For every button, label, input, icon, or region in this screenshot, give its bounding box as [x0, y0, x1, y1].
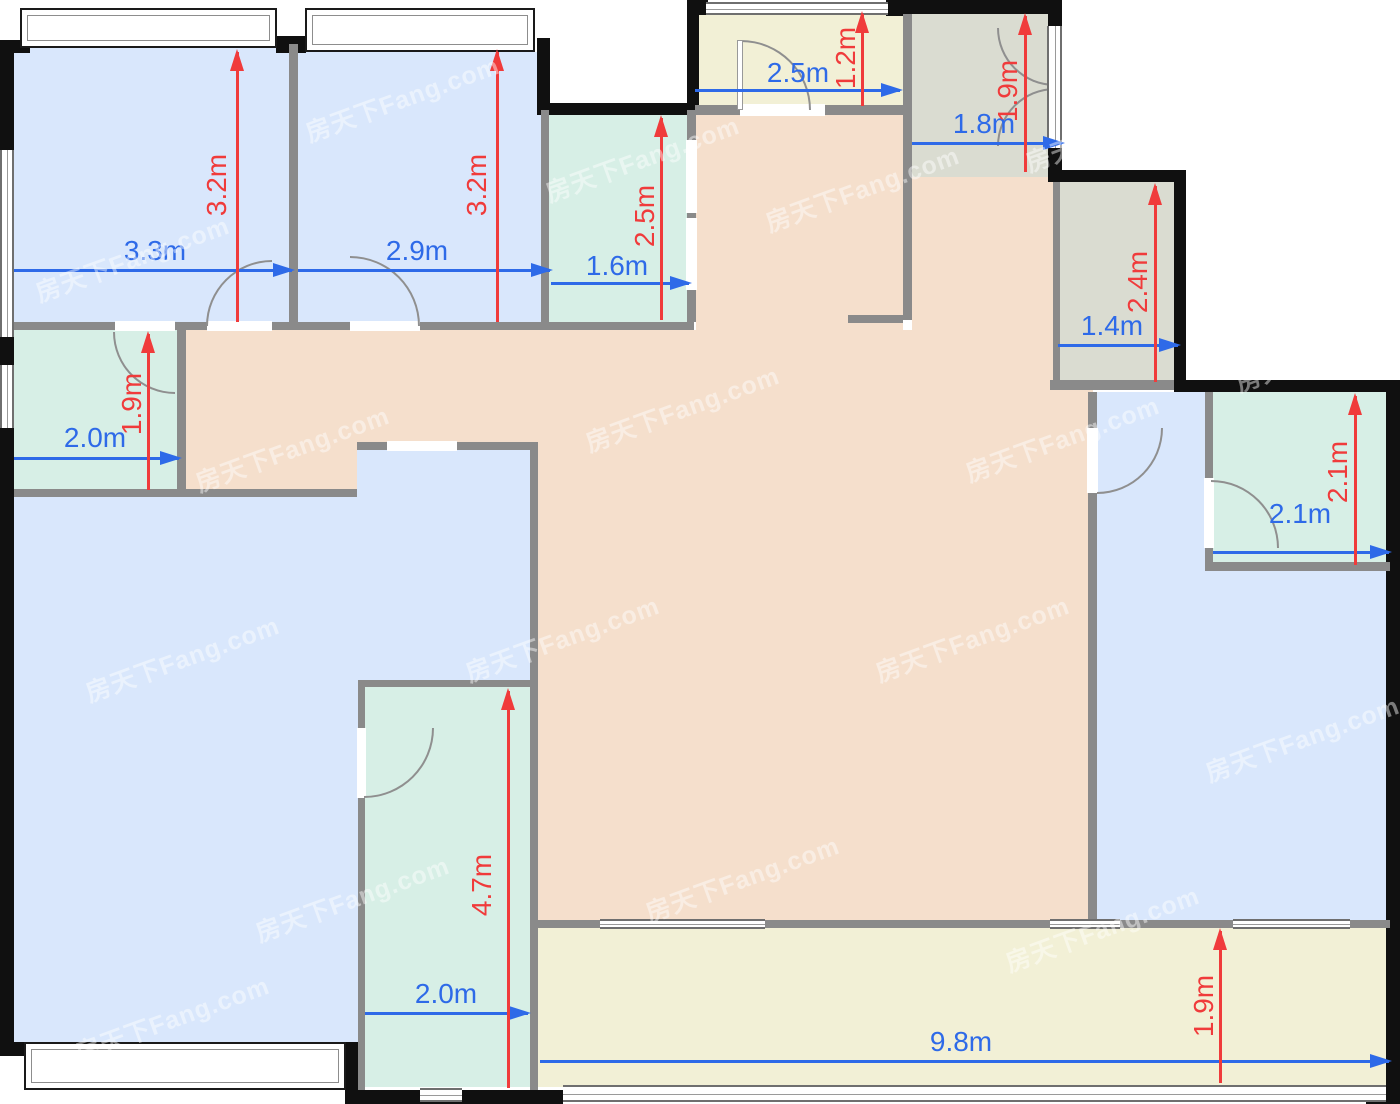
wall-corridor-south — [14, 489, 357, 497]
door-leaf-entry — [737, 40, 743, 110]
window-bedroom-bl-bottom — [24, 1042, 346, 1090]
dim-balcony-width-label: 9.8m — [930, 1026, 992, 1058]
room-bedroom-bottom-left-b — [357, 448, 530, 508]
exterior-notch-top-center — [550, 0, 687, 103]
hallway-below-storage — [912, 177, 1062, 332]
wall-bedroom-bl-east — [530, 442, 538, 1090]
dim-storage-right-depth-arrow — [1154, 186, 1157, 382]
window-left-bedroom1 — [0, 150, 14, 337]
dim-bedroom2-depth-arrow — [496, 52, 499, 322]
wall-balcony-north-b — [765, 920, 1050, 928]
dim-bath-top-depth-label: 2.5m — [629, 185, 661, 247]
dim-entry-width-arrow — [695, 89, 900, 92]
dim-bath-right-depth-label: 2.1m — [1322, 441, 1354, 503]
wall-balcony-north-d — [1350, 920, 1390, 928]
dim-bedroom1-width-arrow — [14, 269, 292, 272]
dim-bedroom2-depth-label: 3.2m — [461, 154, 493, 216]
wall-hall-east-stub — [848, 315, 903, 323]
wall-bath-left-east — [177, 322, 186, 497]
floor-plan: 3.3m 2.9m 1.6m 2.5m 1.8m 1.4m 2.1m 2.0m … — [0, 0, 1400, 1104]
window-bedroom1-top — [20, 8, 277, 48]
dim-bath-left-width-arrow — [14, 457, 179, 460]
dim-balcony-depth-label: 1.9m — [1188, 975, 1220, 1037]
dim-entry-depth-label: 1.2m — [830, 27, 862, 89]
wall-entry-west — [687, 0, 699, 110]
dim-storage-top-depth-label: 1.9m — [992, 60, 1024, 122]
wall-bottom-left-corner — [0, 1042, 27, 1056]
dim-bedroom2-width-arrow — [298, 269, 550, 272]
dim-bedroom1-depth-arrow — [236, 52, 239, 322]
exterior-notch-right — [1186, 0, 1400, 380]
wall-hall-east — [903, 14, 912, 320]
wall-storage-top-north — [905, 0, 1062, 14]
dim-kitchen-width-label: 2.0m — [415, 978, 477, 1010]
door-gap-bedroom-bl — [387, 441, 457, 451]
dim-storage-top-depth-arrow — [1024, 16, 1027, 172]
dim-bath-right-depth-arrow — [1354, 396, 1357, 565]
dim-bedroom1-depth-label: 3.2m — [201, 154, 233, 216]
window-balcony-bottom — [563, 1085, 1386, 1102]
window-living-balcony — [600, 919, 765, 929]
dim-bath-left-depth-label: 1.9m — [116, 373, 148, 435]
wall-storage-right-east — [1174, 170, 1186, 392]
window-left-bath — [0, 365, 14, 428]
dim-entry-width-label: 2.5m — [767, 57, 829, 89]
wall-storage-right-north — [1053, 170, 1186, 182]
dim-bedroom1-width-label: 3.3m — [124, 235, 186, 267]
wall-bedroom-right-north — [1174, 380, 1400, 392]
dim-bedroom2-width-label: 2.9m — [386, 235, 448, 267]
wall-bath-top-north — [537, 103, 694, 115]
room-balcony — [537, 928, 1386, 1087]
window-storage-right-side — [1047, 26, 1062, 148]
wall-bedroom1-bedroom2 — [289, 44, 298, 322]
wall-entry-pier-left — [687, 0, 708, 15]
wall-balcony-north-c — [1120, 920, 1233, 928]
dim-storage-top-width-arrow — [912, 142, 1062, 145]
wall-right — [1386, 380, 1400, 1104]
dim-kitchen-depth-arrow — [507, 691, 510, 1088]
hallway-below-entry — [696, 113, 903, 332]
window-bedroom-right-balcony-b — [1233, 919, 1350, 929]
dim-storage-right-width-arrow — [1058, 344, 1178, 347]
room-bedroom-top-middle — [298, 52, 541, 322]
wall-bath-right-south — [1205, 562, 1390, 571]
dim-bath-top-width-label: 1.6m — [586, 250, 648, 282]
window-kitchen-bottom — [420, 1088, 462, 1102]
dim-storage-right-depth-label: 2.4m — [1122, 251, 1154, 313]
dim-bath-top-width-arrow — [551, 282, 689, 285]
dim-kitchen-depth-label: 4.7m — [466, 854, 498, 916]
wall-storage-ne-corner — [1048, 0, 1062, 28]
wall-kitchen-south — [362, 1090, 563, 1104]
wall-storage-right-west — [1053, 182, 1060, 382]
room-bath-top — [549, 115, 687, 322]
window-bedroom2-top — [305, 8, 535, 52]
window-bedroom-right-balcony-a — [1050, 919, 1120, 929]
opening-bath-top-a — [686, 140, 697, 213]
dim-storage-right-width-label: 1.4m — [1081, 310, 1143, 342]
door-gap-bath-left — [115, 321, 175, 331]
wall-balcony-north-a — [533, 920, 600, 928]
wall-kitchen-north — [358, 680, 537, 687]
dim-balcony-width-arrow — [540, 1060, 1389, 1063]
wall-bedroom2-bath-top — [541, 110, 549, 322]
dim-kitchen-width-arrow — [365, 1012, 528, 1015]
dim-bath-right-width-arrow — [1213, 551, 1389, 554]
